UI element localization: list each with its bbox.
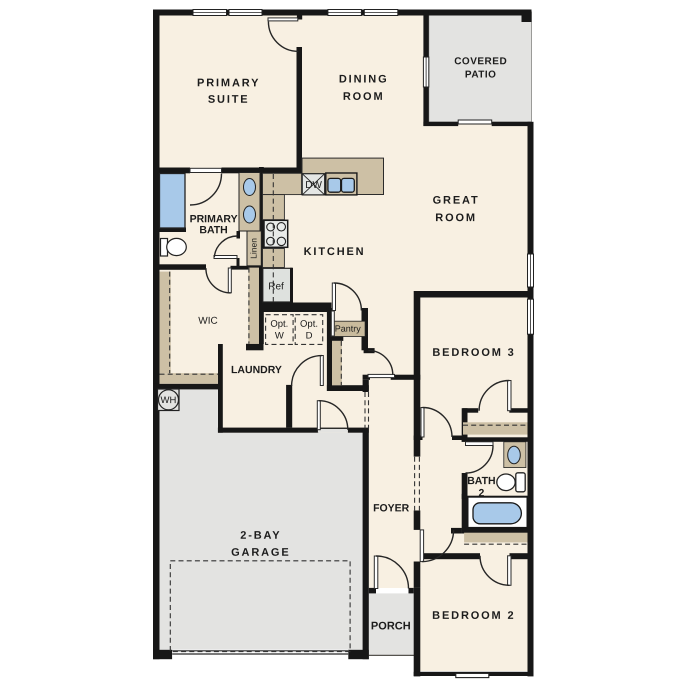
svg-text:LAUNDRY: LAUNDRY — [231, 364, 282, 376]
svg-text:WIC: WIC — [198, 316, 217, 327]
svg-text:D: D — [306, 330, 313, 341]
svg-text:BEDROOM 2: BEDROOM 2 — [432, 610, 515, 622]
svg-text:Linen: Linen — [249, 238, 259, 259]
svg-text:PORCH: PORCH — [371, 620, 411, 632]
svg-text:SUITE: SUITE — [208, 94, 250, 106]
svg-text:Opt.: Opt. — [270, 319, 288, 330]
svg-text:GREAT: GREAT — [433, 195, 480, 207]
svg-text:DW: DW — [305, 180, 322, 191]
svg-text:Opt.: Opt. — [300, 319, 318, 330]
svg-text:ROOM: ROOM — [435, 212, 477, 224]
svg-text:2-BAY: 2-BAY — [240, 530, 281, 542]
svg-text:DINING: DINING — [339, 73, 389, 85]
svg-text:PATIO: PATIO — [465, 69, 497, 80]
svg-text:2: 2 — [478, 487, 484, 499]
svg-text:BEDROOM 3: BEDROOM 3 — [432, 347, 515, 359]
svg-text:GARAGE: GARAGE — [231, 547, 290, 559]
svg-text:ROOM: ROOM — [343, 91, 385, 103]
svg-text:WH: WH — [161, 395, 177, 406]
svg-text:BATH: BATH — [467, 475, 495, 487]
svg-text:KITCHEN: KITCHEN — [304, 246, 366, 258]
svg-text:Pantry: Pantry — [335, 324, 362, 334]
svg-text:BATH: BATH — [199, 224, 227, 236]
svg-text:PRIMARY: PRIMARY — [197, 77, 260, 89]
svg-text:W: W — [275, 330, 284, 341]
svg-text:FOYER: FOYER — [373, 502, 410, 514]
svg-text:COVERED: COVERED — [454, 56, 507, 67]
svg-text:Ref: Ref — [268, 281, 284, 292]
